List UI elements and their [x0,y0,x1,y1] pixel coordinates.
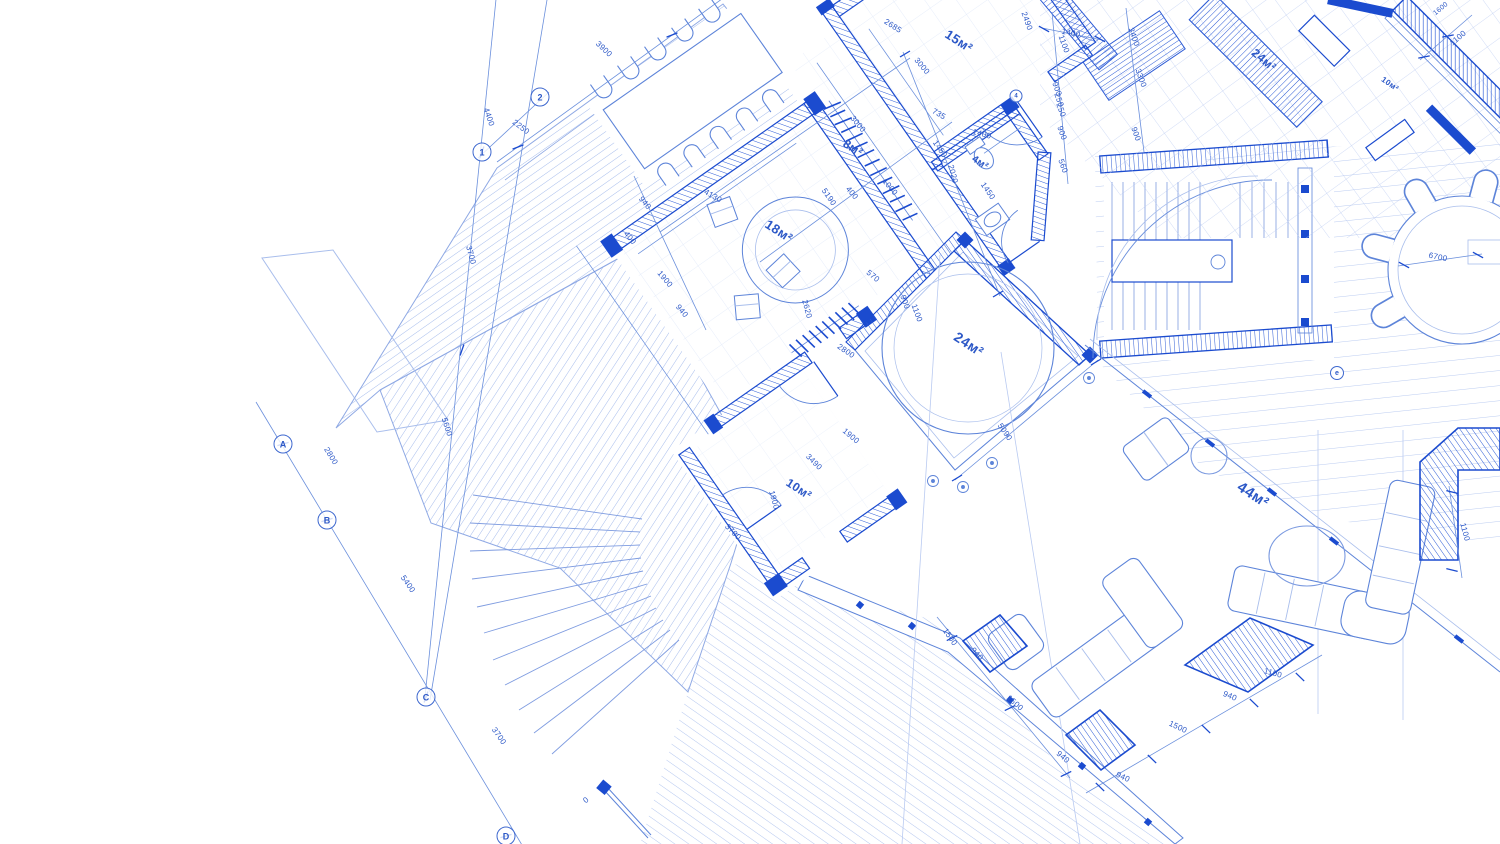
deck-bottom [640,563,1178,844]
blueprint-linework [0,0,1500,844]
blueprint-canvas: 15м²8м²4м²18м²24м²10м²44м²24м²10м²390044… [0,0,1500,844]
survey-flag [596,780,651,838]
